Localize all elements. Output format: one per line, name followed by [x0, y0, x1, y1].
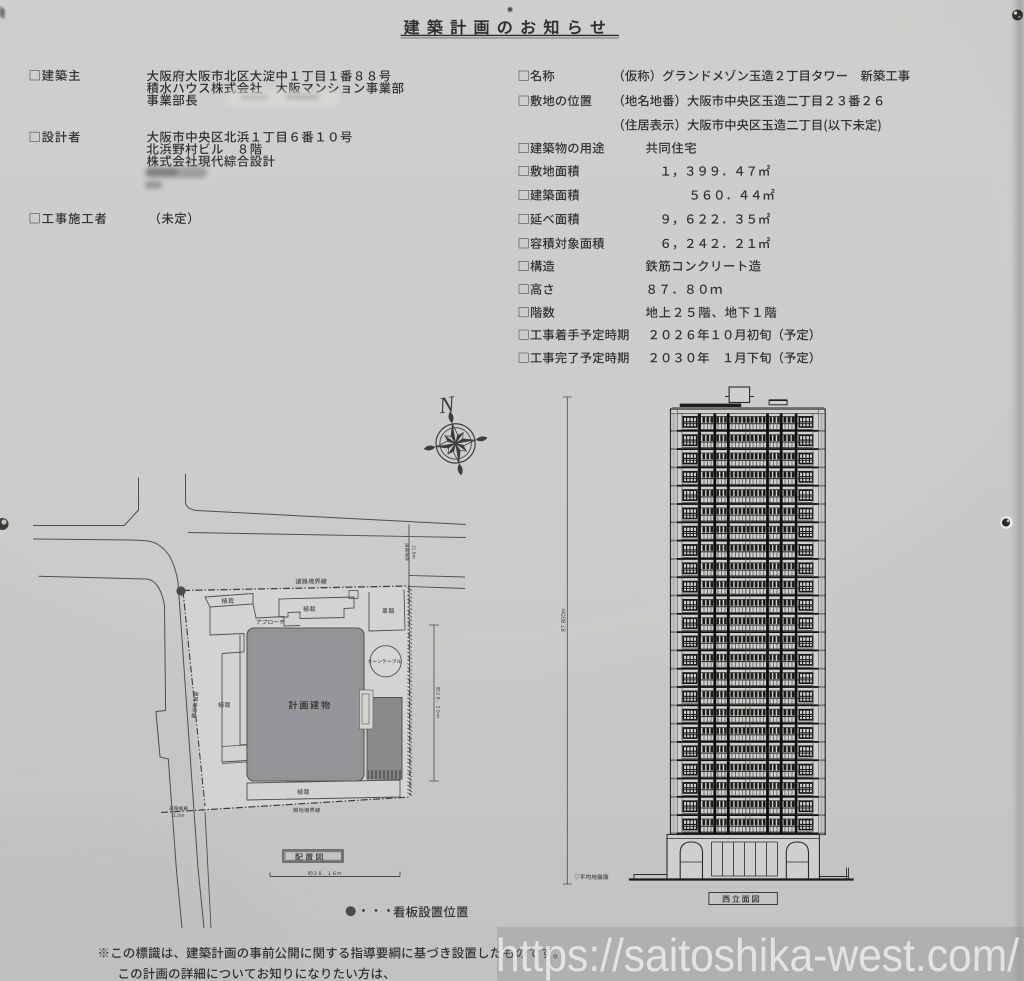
svg-text:https://saitoshika-west.com/: https://saitoshika-west.com/	[496, 929, 1019, 981]
svg-text:87.800m: 87.800m	[562, 608, 568, 631]
